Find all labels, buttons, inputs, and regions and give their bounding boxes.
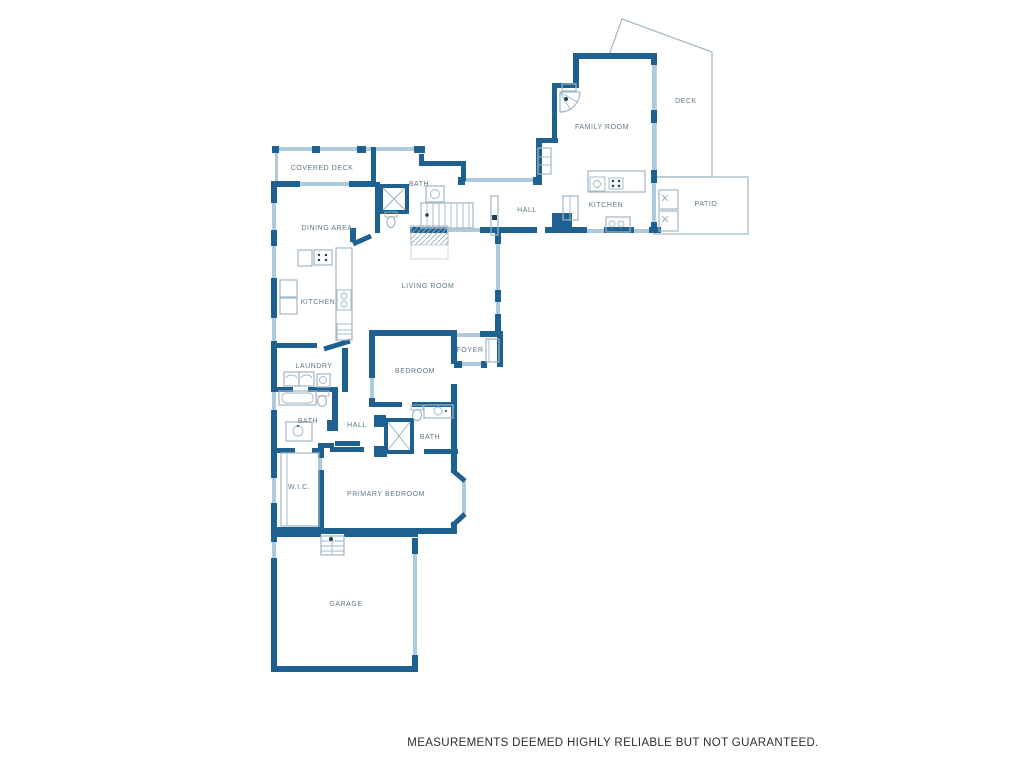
room-label-laundry: LAUNDRY — [295, 363, 332, 370]
room-label-bath-main: BATH — [298, 418, 318, 425]
fixtures-layer — [279, 84, 678, 555]
room-label-deck: DECK — [675, 98, 697, 105]
floor-plan-canvas: FAMILY ROOMDECKKITCHENPATIOHALLCOVERED D… — [0, 0, 1024, 768]
room-label-hall-upper: HALL — [517, 207, 537, 214]
room-label-bedroom: BEDROOM — [395, 368, 435, 375]
upper-bath-fixtures — [381, 186, 444, 228]
covered-deck-windows — [275, 147, 420, 151]
room-label-family-room: FAMILY ROOM — [575, 124, 629, 131]
kitchen-main-counters — [280, 248, 352, 341]
disclaimer-text: MEASUREMENTS DEEMED HIGHLY RELIABLE BUT … — [407, 737, 818, 749]
laundry-fixtures — [284, 372, 330, 387]
fireplace-mass — [552, 213, 572, 233]
room-label-foyer: FOYER — [457, 347, 484, 354]
garage-stairs — [321, 536, 344, 555]
room-label-patio: PATIO — [695, 201, 718, 208]
covered-deck-left-edge — [275, 151, 278, 182]
room-label-covered-deck: COVERED DECK — [291, 165, 354, 172]
room-label-bath-bedroom: BATH — [420, 434, 440, 441]
room-label-garage: GARAGE — [329, 601, 362, 608]
room-label-hall-main: HALL — [347, 422, 367, 429]
room-label-wic: W.I.C. — [288, 484, 310, 491]
bbq-grill — [659, 190, 678, 231]
outdoor-outlines — [275, 19, 748, 234]
kitchen-island — [588, 171, 645, 192]
room-label-kitchen-upper: KITCHEN — [589, 202, 624, 209]
main-bath-fixtures — [279, 391, 329, 441]
floor-plan-page: FAMILY ROOMDECKKITCHENPATIOHALLCOVERED D… — [0, 0, 1024, 768]
room-label-dining-area: DINING AREA — [301, 225, 352, 232]
room-label-kitchen-main: KITCHEN — [301, 299, 336, 306]
garage-door — [413, 554, 417, 655]
room-label-living-room: LIVING ROOM — [402, 283, 455, 290]
bedroom-bath-fixtures — [386, 405, 453, 452]
bay-window — [462, 481, 466, 514]
room-label-primary-bedroom: PRIMARY BEDROOM — [347, 491, 425, 498]
spiral-staircase — [560, 84, 580, 112]
room-label-bath-upper: BATH — [409, 181, 429, 188]
